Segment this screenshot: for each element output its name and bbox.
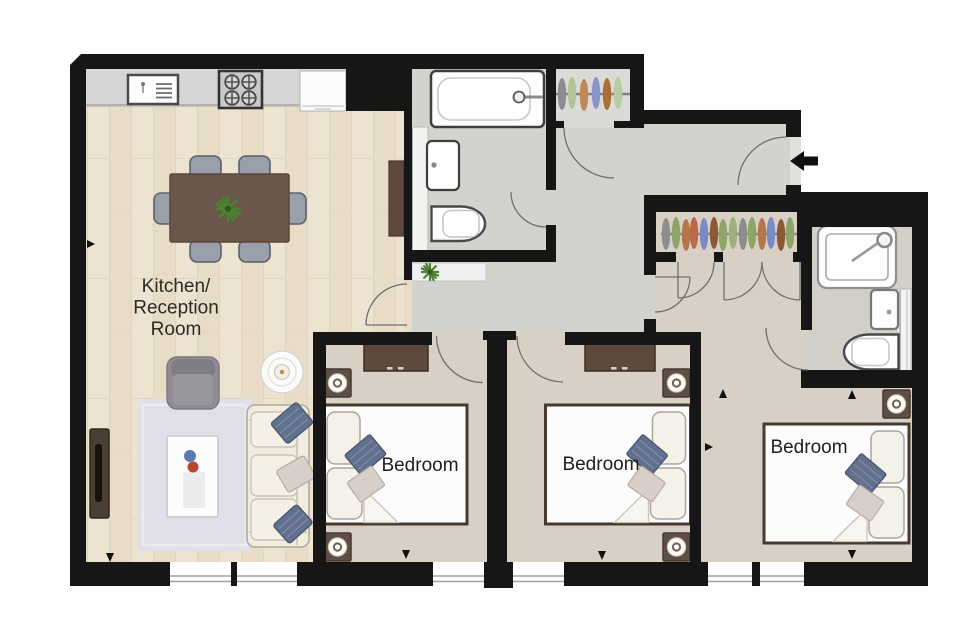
svg-text:Bedroom: Bedroom (770, 437, 847, 458)
svg-text:Kitchen/: Kitchen/ (142, 276, 211, 297)
svg-text:Room: Room (151, 319, 202, 340)
svg-text:Bedroom: Bedroom (562, 454, 639, 475)
svg-text:Reception: Reception (133, 298, 219, 319)
svg-text:Bedroom: Bedroom (381, 455, 458, 476)
